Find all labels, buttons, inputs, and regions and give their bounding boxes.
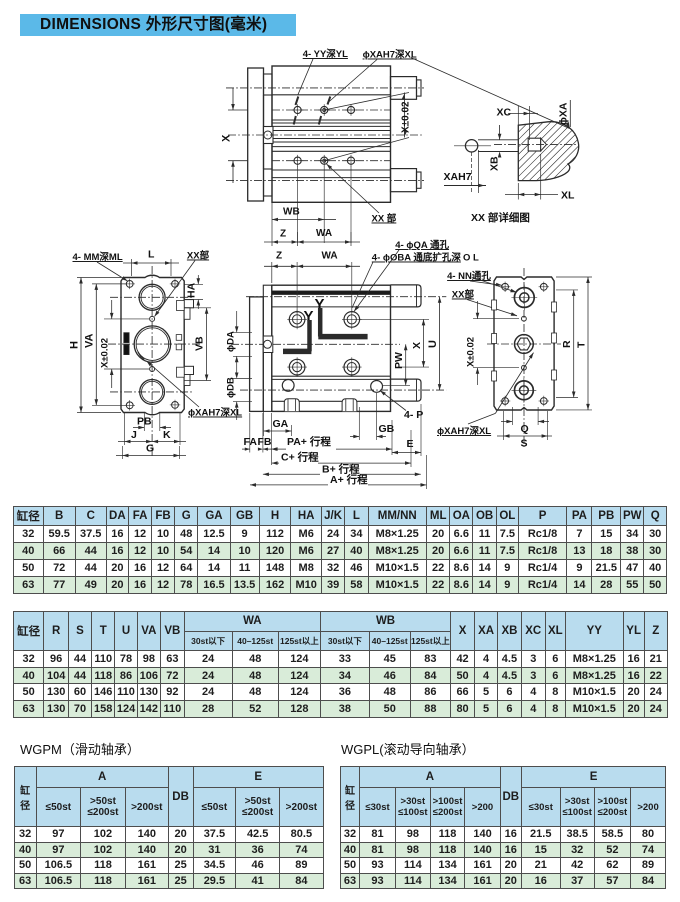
svg-text:ϕXAH7深XL: ϕXAH7深XL	[363, 49, 417, 61]
svg-text:PB: PB	[137, 416, 152, 428]
svg-text:C+ 行程: C+ 行程	[281, 451, 319, 464]
svg-text:FB: FB	[258, 436, 272, 448]
svg-text:4- YY深YL: 4- YY深YL	[303, 48, 348, 60]
svg-text:H: H	[69, 341, 81, 349]
svg-text:4- ϕOBA 通底扩孔深: 4- ϕOBA 通底扩孔深	[372, 252, 462, 264]
svg-text:G: G	[146, 443, 154, 455]
svg-text:E: E	[407, 438, 414, 450]
svg-text:Q: Q	[521, 423, 529, 435]
svg-text:VA: VA	[84, 333, 96, 348]
svg-text:GA: GA	[273, 418, 289, 430]
svg-text:PW: PW	[393, 352, 405, 369]
svg-text:WA: WA	[316, 228, 332, 239]
svg-text:XX 部详细图: XX 部详细图	[471, 211, 530, 224]
svg-text:ϕDB: ϕDB	[226, 377, 237, 398]
svg-text:Z: Z	[280, 229, 286, 240]
svg-text:T: T	[576, 341, 588, 348]
svg-text:FA: FA	[244, 436, 258, 448]
svg-text:XB: XB	[489, 156, 501, 171]
svg-text:X±0.02: X±0.02	[100, 338, 111, 368]
svg-text:XL: XL	[561, 190, 575, 202]
svg-text:U: U	[427, 340, 439, 348]
svg-text:X: X	[411, 342, 423, 349]
svg-text:O L: O L	[463, 253, 479, 264]
svg-text:XAH7: XAH7	[444, 171, 472, 183]
svg-text:XX部: XX部	[187, 250, 210, 262]
svg-text:4- P: 4- P	[404, 409, 423, 421]
svg-text:4- NN通孔: 4- NN通孔	[447, 270, 491, 282]
svg-text:WB: WB	[283, 207, 300, 218]
svg-text:X±0.02: X±0.02	[466, 337, 477, 367]
svg-text:4- MM深ML: 4- MM深ML	[73, 251, 123, 263]
svg-text:XC: XC	[497, 107, 512, 119]
svg-text:X±0.02: X±0.02	[401, 101, 412, 133]
svg-text:S: S	[521, 438, 528, 450]
svg-text:XX部: XX部	[452, 289, 475, 301]
svg-text:L: L	[148, 249, 155, 261]
svg-text:R: R	[561, 340, 573, 348]
svg-text:WA: WA	[322, 251, 338, 262]
svg-text:ϕXA: ϕXA	[558, 102, 570, 125]
svg-text:XX 部: XX 部	[372, 213, 397, 225]
svg-text:X: X	[221, 134, 233, 142]
svg-text:ϕXAH7深XL: ϕXAH7深XL	[188, 407, 242, 419]
svg-text:A+ 行程: A+ 行程	[330, 473, 368, 486]
svg-text:4- ϕQA 通孔: 4- ϕQA 通孔	[395, 239, 449, 251]
svg-text:HA: HA	[186, 282, 198, 298]
svg-text:PA+ 行程: PA+ 行程	[287, 435, 331, 448]
svg-text:Z: Z	[276, 251, 282, 262]
svg-text:K: K	[163, 429, 171, 441]
svg-text:J: J	[131, 429, 137, 441]
svg-text:VB: VB	[194, 336, 206, 351]
svg-text:ϕXAH7深XL: ϕXAH7深XL	[437, 425, 491, 437]
svg-text:ϕDA: ϕDA	[226, 331, 237, 352]
